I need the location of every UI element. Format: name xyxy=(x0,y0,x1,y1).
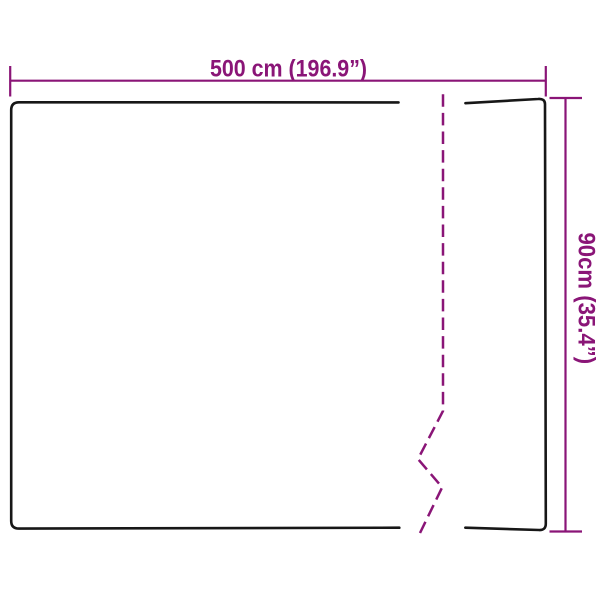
svg-text:500 cm (196.9”): 500 cm (196.9”) xyxy=(210,55,367,81)
svg-text:90cm (35.4”): 90cm (35.4”) xyxy=(573,233,600,365)
